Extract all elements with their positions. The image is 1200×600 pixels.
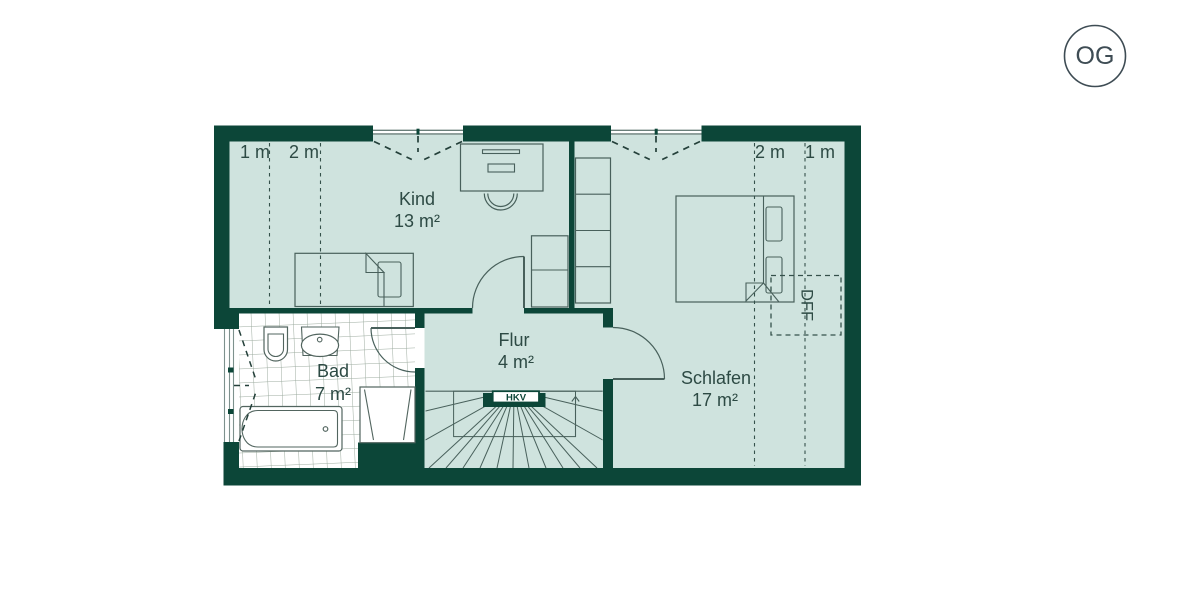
svg-text:HKV: HKV xyxy=(506,393,527,404)
svg-text:17 m²: 17 m² xyxy=(692,390,738,410)
svg-text:OG: OG xyxy=(1076,42,1115,70)
svg-text:1 m: 1 m xyxy=(805,142,835,162)
svg-text:7 m²: 7 m² xyxy=(315,384,351,404)
svg-text:DFF: DFF xyxy=(798,289,816,321)
svg-text:Schlafen: Schlafen xyxy=(681,368,751,388)
svg-text:2 m: 2 m xyxy=(289,142,319,162)
svg-text:Kind: Kind xyxy=(399,189,435,209)
svg-text:13 m²: 13 m² xyxy=(394,211,440,231)
svg-text:2 m: 2 m xyxy=(755,142,785,162)
svg-text:4 m²: 4 m² xyxy=(498,352,534,372)
svg-text:Bad: Bad xyxy=(317,361,349,381)
svg-text:1 m: 1 m xyxy=(240,142,270,162)
svg-text:Flur: Flur xyxy=(499,330,530,350)
